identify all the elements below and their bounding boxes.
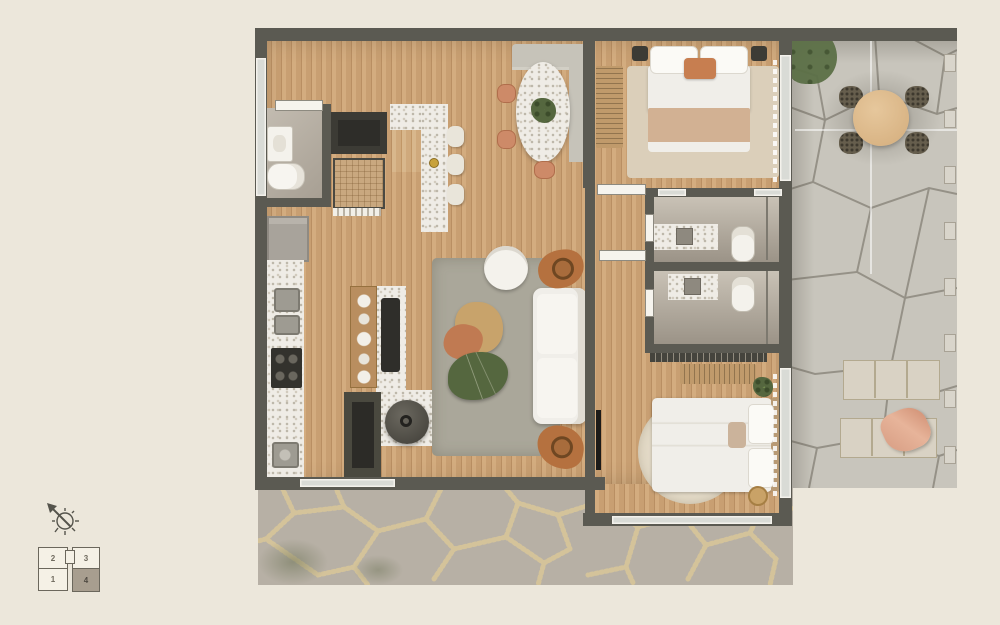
island-grill bbox=[381, 298, 400, 372]
vanity-sink bbox=[684, 278, 701, 295]
glass-door-bedroom2 bbox=[780, 368, 791, 498]
outdoor-patio bbox=[787, 36, 957, 488]
slider-bedroom2-south bbox=[612, 516, 772, 524]
powder-sink bbox=[267, 126, 293, 162]
moss-patch bbox=[353, 555, 403, 585]
fence-post bbox=[944, 446, 956, 464]
round-side-table bbox=[385, 400, 429, 444]
bed-blanket bbox=[648, 108, 750, 146]
keyplan-unit-4[interactable]: 4 bbox=[72, 568, 100, 592]
wall-bath-mid bbox=[645, 262, 792, 271]
fence-post bbox=[944, 222, 956, 240]
wall-powder-bottom bbox=[255, 198, 331, 207]
kitchen-sink bbox=[274, 315, 300, 335]
vanity-sink bbox=[676, 228, 693, 245]
patio-round-table bbox=[853, 90, 909, 146]
bar-stool bbox=[447, 126, 464, 147]
bedroom1-bench bbox=[596, 66, 623, 148]
sink-basin bbox=[273, 135, 286, 152]
fridge bbox=[267, 216, 309, 262]
powder-toilet bbox=[267, 163, 305, 190]
glass-door-bedroom1 bbox=[780, 55, 791, 181]
moss-patch bbox=[258, 539, 328, 585]
lounger-divider bbox=[874, 361, 876, 398]
entry-mat bbox=[333, 158, 385, 209]
wall-bath-bottom bbox=[645, 344, 792, 353]
bar-faucet bbox=[429, 158, 439, 168]
fence-post bbox=[944, 166, 956, 184]
bar-wood-top bbox=[392, 130, 421, 172]
sun-lounger bbox=[843, 360, 940, 400]
kitchen-cabinet bbox=[344, 392, 381, 478]
island-tray bbox=[350, 286, 377, 388]
sofa bbox=[533, 288, 587, 424]
dining-chair bbox=[497, 84, 516, 103]
side-table-top bbox=[551, 256, 576, 281]
keyplan-unit-3[interactable]: 3 bbox=[72, 547, 100, 570]
bath2-toilet bbox=[731, 276, 755, 312]
dining-chair bbox=[534, 161, 555, 179]
kitchen-sink bbox=[274, 288, 300, 312]
fence-post bbox=[944, 334, 956, 352]
sun-lounger bbox=[840, 418, 937, 458]
door-powder bbox=[276, 101, 322, 110]
bath1-toilet bbox=[731, 226, 755, 262]
accent-pillow bbox=[684, 58, 716, 79]
bath1-vanity bbox=[654, 224, 718, 250]
tv-panel bbox=[596, 410, 601, 470]
bed-fold bbox=[648, 142, 750, 152]
shoe-rack bbox=[333, 208, 381, 216]
lounger-divider bbox=[906, 361, 908, 398]
wall-hall-west bbox=[585, 188, 595, 513]
shower-glass bbox=[766, 197, 768, 260]
curtain bbox=[773, 58, 777, 182]
door-hallway bbox=[598, 185, 645, 194]
bed-pillow bbox=[748, 448, 774, 488]
cabinet-inner bbox=[352, 402, 374, 468]
keyplan-unit-1[interactable]: 1 bbox=[38, 568, 68, 591]
door-bath2 bbox=[646, 290, 653, 316]
entry-closet bbox=[330, 112, 387, 154]
wall-top bbox=[255, 28, 957, 41]
armchair bbox=[484, 246, 528, 290]
bedroom1-bed bbox=[646, 44, 750, 152]
breakfast-bar bbox=[421, 104, 448, 232]
keyplan-unit-2[interactable]: 2 bbox=[38, 547, 68, 570]
window-bath1 bbox=[658, 189, 686, 196]
patio-chair bbox=[905, 132, 929, 154]
bar-stool bbox=[447, 154, 464, 175]
nightstand bbox=[751, 46, 767, 61]
bedroom2-plant bbox=[753, 377, 773, 397]
door-bath1 bbox=[646, 215, 653, 241]
fence-post bbox=[944, 54, 956, 72]
keyplan-connector bbox=[65, 550, 75, 564]
table-ring bbox=[400, 415, 412, 427]
dining-chair bbox=[497, 130, 516, 149]
closet-inner bbox=[338, 120, 380, 146]
bath2-vanity bbox=[668, 274, 718, 300]
bed-pillow bbox=[748, 404, 774, 444]
sofa-cushion bbox=[537, 358, 577, 418]
door-bedroom2 bbox=[600, 251, 645, 260]
side-table-top bbox=[549, 435, 574, 460]
sofa-cushion bbox=[537, 294, 577, 354]
window-living-south bbox=[300, 479, 395, 487]
patio-chair bbox=[905, 86, 929, 108]
floorplan-canvas: 2 3 1 4 bbox=[0, 0, 1000, 625]
north-compass-icon bbox=[40, 498, 84, 542]
lounger-divider bbox=[871, 419, 873, 456]
window-left bbox=[256, 58, 266, 196]
wall-powder-right bbox=[322, 104, 331, 207]
bedroom2-bed bbox=[652, 398, 779, 492]
bar-stool bbox=[447, 184, 464, 205]
cooktop bbox=[271, 348, 302, 388]
curtain bbox=[773, 372, 777, 496]
bedroom2-stool bbox=[748, 486, 768, 506]
window-bath2 bbox=[754, 189, 782, 196]
bedroom2-bench bbox=[680, 364, 756, 384]
table-plant bbox=[531, 98, 556, 123]
wall-bedroom1-west bbox=[583, 41, 595, 188]
prep-sink bbox=[272, 442, 299, 468]
shower-glass bbox=[766, 271, 768, 344]
fence-post bbox=[944, 390, 956, 408]
accent-pillow bbox=[728, 422, 746, 448]
fence-post bbox=[944, 110, 956, 128]
unit-keyplan: 2 3 1 4 bbox=[36, 544, 102, 594]
fence-post bbox=[944, 278, 956, 296]
